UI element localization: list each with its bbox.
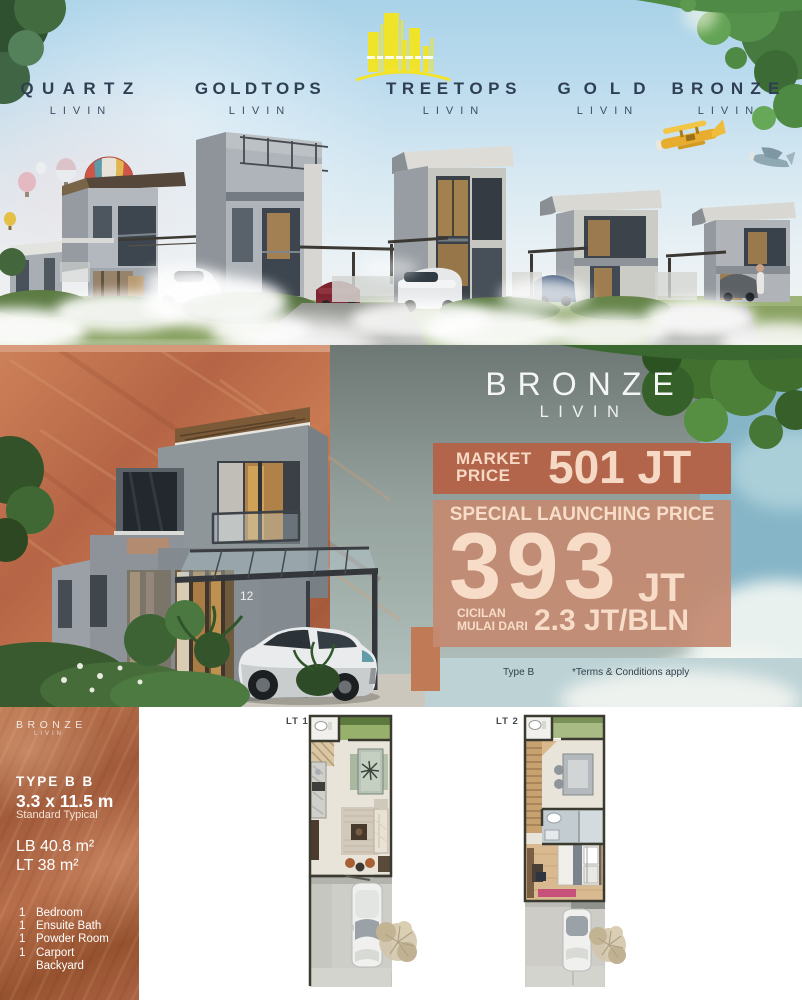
svg-text:12: 12 [240,589,254,603]
